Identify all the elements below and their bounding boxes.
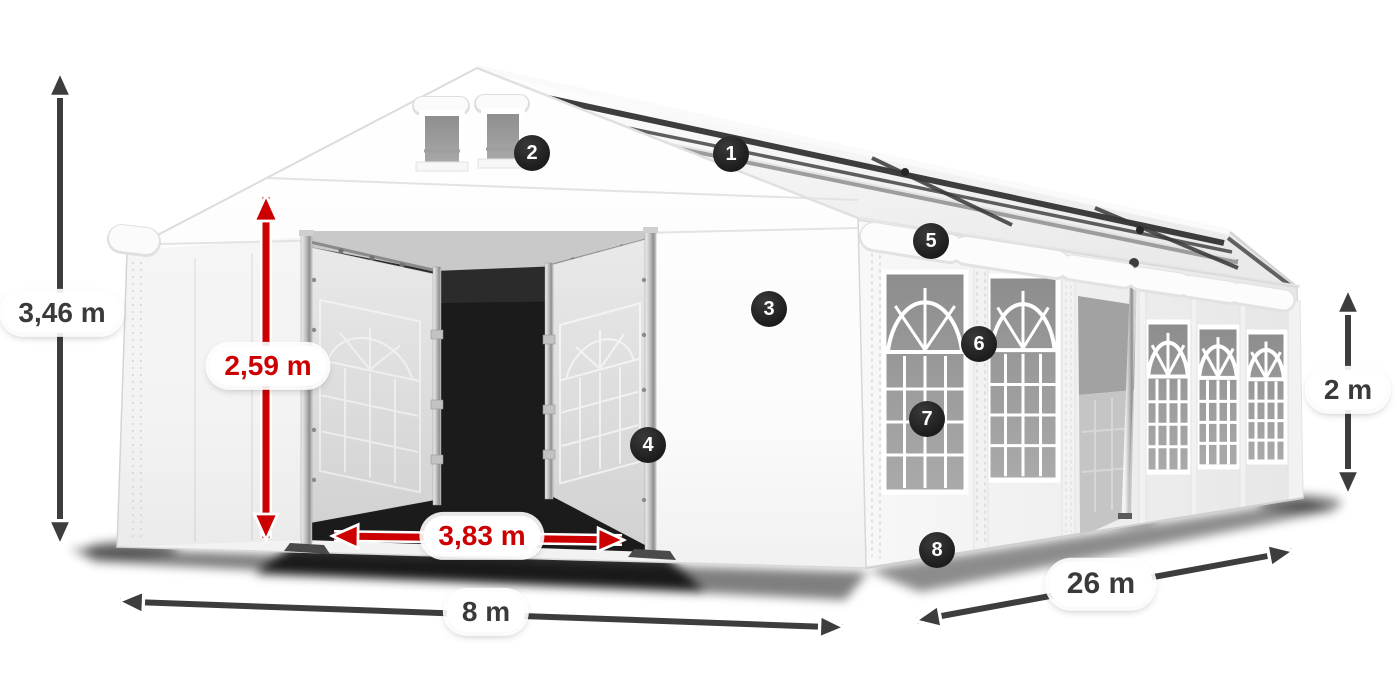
side-wall-height-label: 2 m	[1309, 370, 1387, 410]
entrance-width-label: 3,83 m	[423, 516, 540, 556]
side-window-5	[1246, 332, 1286, 462]
side-window-2	[988, 276, 1058, 480]
gable-vent-left	[416, 105, 468, 171]
feature-marker-7: 7	[909, 401, 945, 437]
side-window-4	[1197, 327, 1239, 467]
feature-marker-4: 4	[630, 427, 666, 463]
length-label: 26 m	[1049, 562, 1153, 607]
side-window-1	[884, 272, 966, 492]
feature-marker-3: 3	[751, 291, 787, 327]
feature-marker-8: 8	[919, 532, 955, 568]
tent-illustration	[0, 0, 1400, 700]
front-width-label: 8 m	[447, 592, 525, 632]
feature-marker-1: 1	[713, 136, 749, 172]
side-window-3	[1146, 322, 1190, 472]
tent-entrance	[284, 227, 676, 560]
total-height-label: 3,46 m	[3, 293, 120, 333]
feature-marker-2: 2	[514, 135, 550, 171]
entrance-door-right	[548, 238, 651, 548]
tent-dimensions-diagram: 3,46 m 2,59 m 3,83 m 8 m 26 m 2 m 1 2 3 …	[0, 0, 1400, 700]
feature-marker-6: 6	[961, 326, 997, 362]
feature-marker-5: 5	[913, 223, 949, 259]
entrance-height-label: 2,59 m	[209, 346, 326, 386]
entrance-door-left	[309, 247, 434, 523]
